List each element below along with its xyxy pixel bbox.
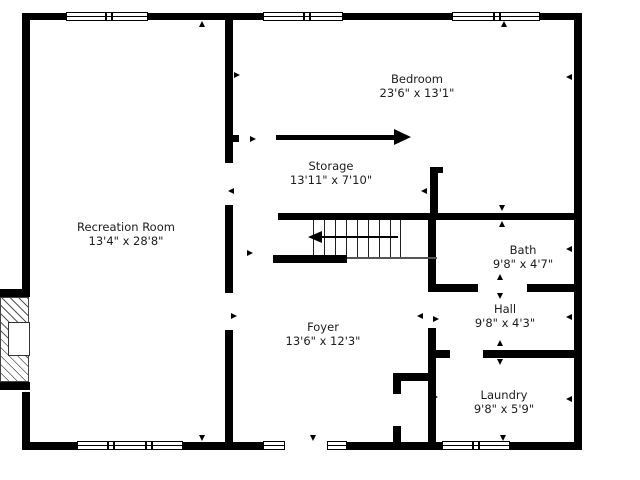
door-marker <box>310 435 316 441</box>
wall-bath-bottom <box>527 284 574 292</box>
chimney-wall <box>0 382 30 390</box>
door-marker <box>421 188 427 194</box>
door-marker <box>497 340 503 346</box>
door-marker <box>199 435 205 441</box>
room-name: Hall <box>475 302 535 316</box>
door-marker <box>430 245 436 251</box>
room-name: Laundry <box>474 388 534 402</box>
wall-stair-bottom <box>273 255 347 263</box>
door-marker <box>231 313 237 319</box>
wall-top <box>148 13 263 20</box>
firebox <box>8 322 30 356</box>
door-marker <box>199 21 205 27</box>
door-marker <box>417 313 423 319</box>
room-name: Foyer <box>286 320 361 334</box>
door-marker <box>228 188 234 194</box>
direction-arrowhead <box>394 129 411 145</box>
window <box>77 441 183 450</box>
door-marker <box>499 221 505 227</box>
door-marker <box>500 435 506 441</box>
window <box>442 441 510 450</box>
door-marker <box>497 274 503 280</box>
door-marker <box>432 394 438 400</box>
room-label-recreation-room: Recreation Room 13'4" x 28'8" <box>77 220 175 248</box>
door-marker <box>250 136 256 142</box>
window <box>263 12 343 21</box>
wall-closet-left <box>393 373 401 394</box>
door-marker <box>234 72 240 78</box>
door-marker <box>566 246 572 252</box>
wall-bath-left <box>428 220 436 292</box>
wall-closet-left <box>393 426 401 442</box>
room-dimensions: 13'4" x 28'8" <box>77 234 175 248</box>
stair-direction-arrowhead <box>308 231 322 243</box>
window <box>66 12 148 21</box>
room-dimensions: 9'8" x 4'7" <box>493 257 553 271</box>
wall-right <box>574 13 582 450</box>
room-label-laundry: Laundry 9'8" x 5'9" <box>474 388 534 416</box>
wall-left <box>22 392 30 450</box>
window <box>452 12 540 21</box>
wall-hall-laundry-left <box>428 328 436 442</box>
window <box>327 441 347 450</box>
direction-arrow <box>276 135 396 140</box>
stair-direction-arrow <box>321 236 398 238</box>
wall-storage-bath-top <box>278 213 574 220</box>
wall-bath-bottom <box>433 284 478 292</box>
wall-hall-bottom <box>483 350 574 358</box>
wall-storage-right <box>430 167 438 213</box>
room-dimensions: 13'6" x 12'3" <box>286 334 361 348</box>
room-label-storage: Storage 13'11" x 7'10" <box>290 159 372 187</box>
room-label-bath: Bath 9'8" x 4'7" <box>493 243 553 271</box>
room-name: Recreation Room <box>77 220 175 234</box>
door-marker <box>497 359 503 365</box>
wall-center <box>225 205 233 293</box>
wall-stub <box>430 167 443 173</box>
room-dimensions: 9'8" x 5'9" <box>474 402 534 416</box>
wall-top <box>343 13 452 20</box>
door-marker <box>247 250 253 256</box>
wall-hall-bottom <box>428 350 450 358</box>
chimney-wall <box>0 289 30 297</box>
room-dimensions: 23'6" x 13'1" <box>380 86 455 100</box>
stair-edge-line <box>347 257 437 259</box>
door-marker <box>501 21 507 27</box>
window <box>263 441 285 450</box>
wall-bottom <box>347 442 442 450</box>
room-name: Bath <box>493 243 553 257</box>
room-label-hall: Hall 9'8" x 4'3" <box>475 302 535 330</box>
room-dimensions: 13'11" x 7'10" <box>290 173 372 187</box>
floor-plan: Recreation Room 13'4" x 28'8" Bedroom 23… <box>0 0 640 480</box>
room-name: Storage <box>290 159 372 173</box>
door-marker <box>497 293 503 299</box>
door-marker <box>433 316 439 322</box>
room-label-foyer: Foyer 13'6" x 12'3" <box>286 320 361 348</box>
door-marker <box>566 74 572 80</box>
room-label-bedroom: Bedroom 23'6" x 13'1" <box>380 72 455 100</box>
door-marker <box>499 205 505 211</box>
room-name: Bedroom <box>380 72 455 86</box>
wall-left <box>22 13 30 295</box>
room-dimensions: 9'8" x 4'3" <box>475 316 535 330</box>
stairs <box>313 220 401 257</box>
door-marker <box>566 314 572 320</box>
wall-bottom <box>22 442 77 450</box>
wall-center <box>225 330 233 442</box>
wall-bottom <box>183 442 263 450</box>
wall-stub <box>225 135 239 142</box>
wall-bottom <box>510 442 574 450</box>
door-marker <box>566 396 572 402</box>
